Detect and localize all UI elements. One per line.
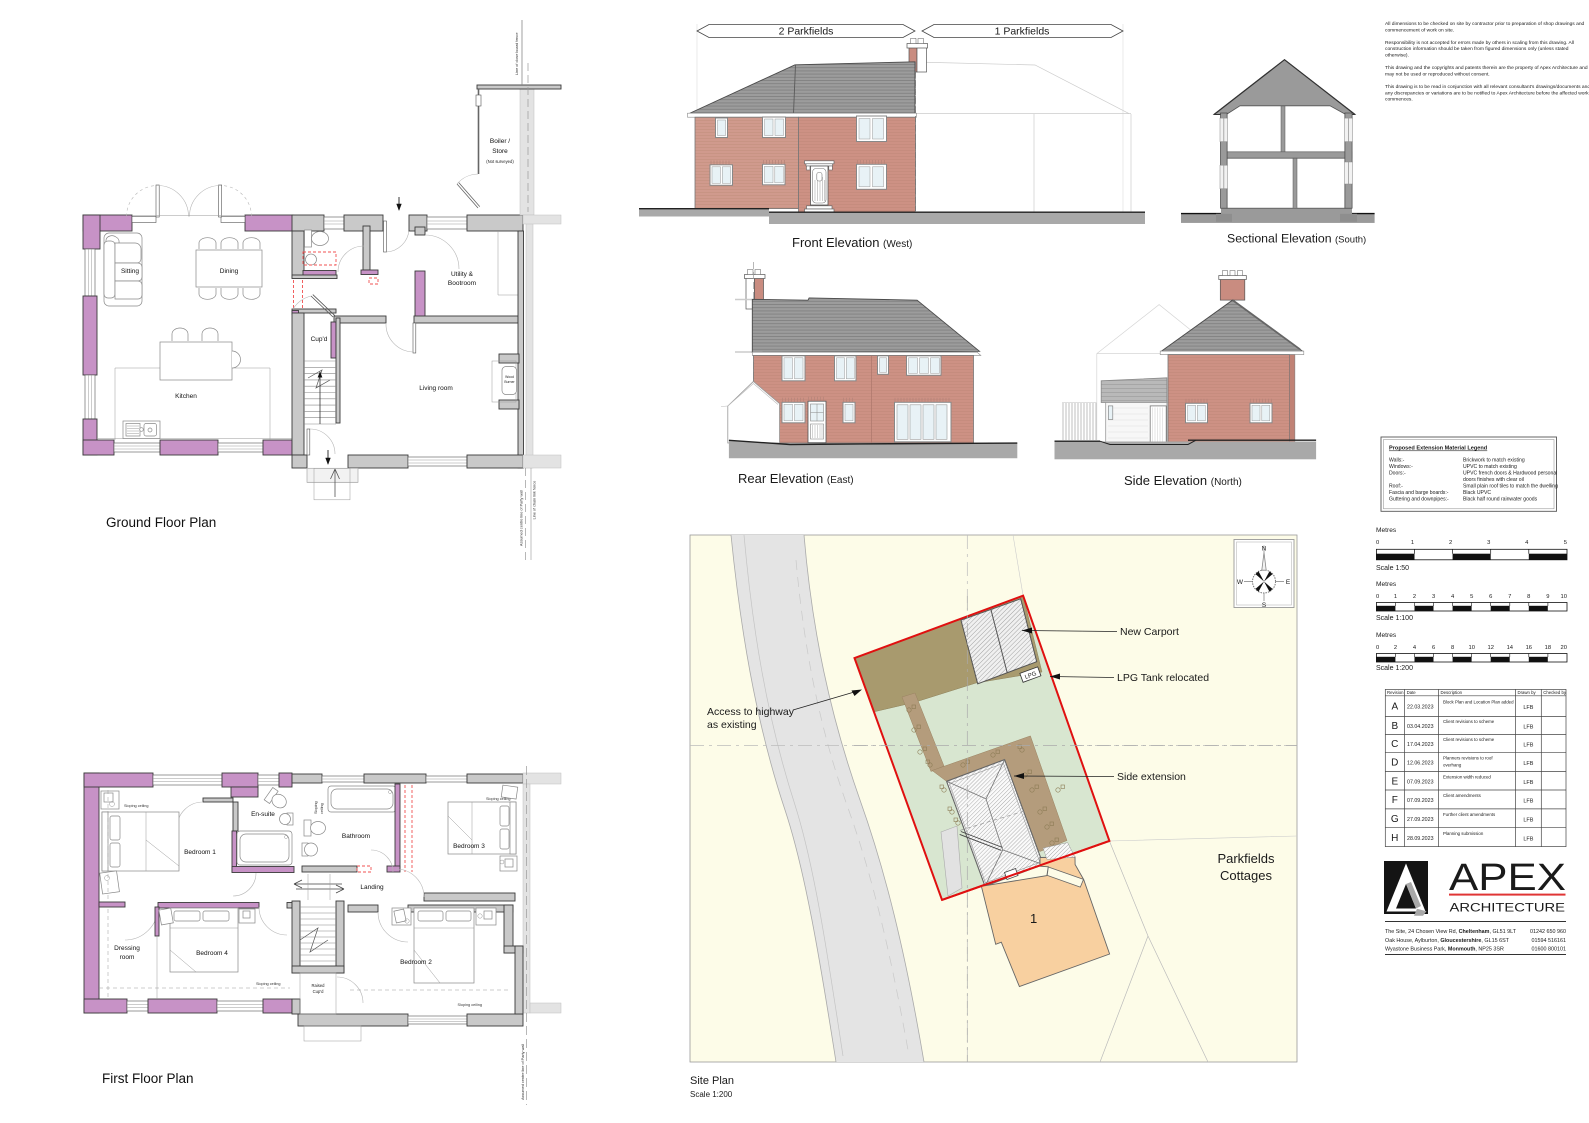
svg-text:Sloping ceiling: Sloping ceiling — [458, 1003, 483, 1007]
svg-text:Brickwork to match existing: Brickwork to match existing — [1463, 458, 1525, 464]
svg-text:D: D — [1391, 758, 1398, 769]
svg-text:UPVC to match existing: UPVC to match existing — [1463, 464, 1517, 470]
svg-text:room: room — [120, 954, 135, 961]
svg-text:6: 6 — [1432, 645, 1435, 651]
svg-text:Extension width reduced: Extension width reduced — [1443, 775, 1491, 780]
svg-text:Scale 1:100: Scale 1:100 — [1376, 615, 1413, 622]
svg-text:Doors:-: Doors:- — [1389, 471, 1406, 477]
svg-text:En-suite: En-suite — [251, 811, 275, 818]
svg-text:Scale 1:200: Scale 1:200 — [1376, 665, 1413, 672]
svg-text:Site Plan: Site Plan — [690, 1075, 734, 1087]
svg-text:20: 20 — [1561, 645, 1567, 651]
svg-text:Windows:-: Windows:- — [1389, 464, 1413, 470]
svg-text:5: 5 — [1470, 594, 1473, 600]
svg-text:10: 10 — [1561, 594, 1567, 600]
svg-text:Walls:-: Walls:- — [1389, 458, 1405, 464]
svg-text:07.09.2023: 07.09.2023 — [1407, 798, 1434, 804]
svg-text:Block Plan and Location Plan a: Block Plan and Location Plan added — [1443, 700, 1514, 705]
svg-text:12: 12 — [1487, 645, 1493, 651]
svg-text:8: 8 — [1527, 594, 1530, 600]
svg-text:0: 0 — [1376, 645, 1379, 651]
svg-text:Bedroom 3: Bedroom 3 — [453, 843, 485, 850]
svg-text:Description: Description — [1441, 690, 1463, 695]
svg-text:Bootroom: Bootroom — [448, 280, 476, 287]
svg-text:7: 7 — [1508, 594, 1511, 600]
svg-text:ceiling: ceiling — [320, 803, 324, 814]
svg-text:Sitting: Sitting — [121, 268, 139, 275]
svg-text:F: F — [1392, 795, 1398, 806]
svg-text:Store: Store — [492, 148, 508, 155]
svg-text:UPVC french doors & Hardwood p: UPVC french doors & Hardwood personal — [1463, 471, 1557, 477]
svg-text:Small plain roof tiles to matc: Small plain roof tiles to match the dwel… — [1463, 484, 1558, 490]
svg-text:01242 650 960: 01242 650 960 — [1530, 929, 1566, 935]
svg-text:22.03.2023: 22.03.2023 — [1407, 705, 1434, 711]
svg-text:Cottages: Cottages — [1220, 868, 1273, 883]
svg-text:Sectional Elevation (South): Sectional Elevation (South) — [1227, 232, 1366, 246]
svg-text:Scale 1:200: Scale 1:200 — [690, 1090, 733, 1099]
svg-text:Drawn by: Drawn by — [1518, 690, 1537, 695]
svg-text:LFB: LFB — [1523, 743, 1533, 749]
svg-text:Cup'd: Cup'd — [313, 989, 324, 994]
svg-text:18: 18 — [1545, 645, 1551, 651]
svg-text:LFB: LFB — [1523, 799, 1533, 805]
svg-text:may not be used or reproduced: may not be used or reproduced without co… — [1385, 71, 1490, 77]
svg-text:First Floor Plan: First Floor Plan — [102, 1071, 194, 1086]
svg-text:A: A — [1391, 702, 1398, 713]
svg-text:12.06.2023: 12.06.2023 — [1407, 761, 1434, 767]
svg-text:Assumed centre line of Party w: Assumed centre line of Party wall — [520, 490, 524, 546]
svg-text:Assumed centre line of Party w: Assumed centre line of Party wall — [521, 1044, 525, 1100]
svg-text:07.09.2023: 07.09.2023 — [1407, 780, 1434, 786]
svg-text:commencement of work on site.: commencement of work on site. — [1385, 27, 1454, 33]
svg-text:Oak House, Aylburton, Gloucest: Oak House, Aylburton, Gloucestershire, G… — [1385, 938, 1510, 944]
svg-text:Planners revisions to roof: Planners revisions to roof — [1443, 756, 1493, 761]
svg-text:Boiler /: Boiler / — [490, 138, 510, 145]
svg-text:Checked by: Checked by — [1543, 690, 1567, 695]
svg-text:G: G — [1391, 814, 1399, 825]
svg-text:Ground Floor Plan: Ground Floor Plan — [106, 515, 216, 530]
svg-text:27.09.2023: 27.09.2023 — [1407, 817, 1434, 823]
svg-text:Wyastone Business Park, Monmou: Wyastone Business Park, Monmouth, NP25 3… — [1385, 947, 1504, 953]
svg-text:Wood: Wood — [505, 375, 514, 379]
svg-text:Date: Date — [1407, 690, 1417, 695]
svg-text:any discrepancies or variation: any discrepancies or variations are to b… — [1385, 90, 1589, 96]
svg-text:Landing: Landing — [360, 884, 384, 891]
svg-text:LFB: LFB — [1523, 725, 1533, 731]
svg-text:1: 1 — [1030, 911, 1037, 926]
svg-text:14: 14 — [1507, 645, 1514, 651]
svg-text:B: B — [1391, 721, 1398, 732]
svg-text:Dressing: Dressing — [114, 945, 140, 952]
svg-text:LPG Tank relocated: LPG Tank relocated — [1117, 672, 1209, 684]
svg-text:Raised: Raised — [311, 983, 325, 988]
svg-text:Metres: Metres — [1376, 632, 1397, 639]
svg-text:Client amendments: Client amendments — [1443, 793, 1482, 798]
svg-text:Guttering and downpipes:-: Guttering and downpipes:- — [1389, 497, 1449, 503]
svg-text:Bedroom 2: Bedroom 2 — [400, 959, 432, 966]
svg-text:LFB: LFB — [1523, 780, 1533, 786]
svg-text:Metres: Metres — [1376, 527, 1397, 534]
svg-text:LFB: LFB — [1523, 761, 1533, 767]
svg-text:3: 3 — [1487, 540, 1490, 546]
svg-text:Side extension: Side extension — [1117, 771, 1186, 783]
svg-text:LFB: LFB — [1523, 817, 1533, 823]
svg-text:S: S — [1262, 602, 1267, 609]
svg-text:This drawing and the copyright: This drawing and the copyrights and pate… — [1385, 65, 1588, 71]
svg-text:Access to highway: Access to highway — [707, 706, 795, 718]
svg-text:0: 0 — [1376, 540, 1379, 546]
svg-text:01594 516161: 01594 516161 — [1532, 938, 1566, 944]
svg-text:LFB: LFB — [1523, 705, 1533, 711]
svg-text:Planning submission: Planning submission — [1443, 831, 1484, 836]
svg-text:Line of chain link fence: Line of chain link fence — [533, 481, 537, 520]
svg-text:overhang: overhang — [1443, 763, 1462, 768]
svg-text:Further client amendments: Further client amendments — [1443, 812, 1496, 817]
svg-text:2: 2 — [1413, 594, 1416, 600]
svg-text:2: 2 — [1449, 540, 1452, 546]
svg-text:10: 10 — [1468, 645, 1474, 651]
svg-text:5: 5 — [1564, 540, 1567, 546]
svg-text:E: E — [1286, 579, 1291, 586]
svg-text:All dimensions to be checked o: All dimensions to be checked on site by … — [1385, 21, 1585, 27]
svg-text:Metres: Metres — [1376, 581, 1397, 588]
svg-text:16: 16 — [1526, 645, 1532, 651]
svg-text:ARCHITECTURE: ARCHITECTURE — [1450, 901, 1566, 915]
svg-text:C: C — [1391, 739, 1398, 750]
svg-text:Burner: Burner — [504, 380, 515, 384]
svg-text:Line of close board fence: Line of close board fence — [515, 33, 519, 75]
svg-text:Parkfields: Parkfields — [1217, 851, 1275, 866]
svg-text:Sloping: Sloping — [314, 801, 318, 814]
svg-text:Client revisions to scheme: Client revisions to scheme — [1443, 719, 1495, 724]
svg-text:Utility &: Utility & — [451, 271, 474, 278]
svg-text:Sloping ceiling: Sloping ceiling — [124, 804, 149, 808]
svg-text:otherwise).: otherwise). — [1385, 53, 1409, 59]
svg-text:Bedroom 4: Bedroom 4 — [196, 950, 228, 957]
svg-text:N: N — [1262, 546, 1267, 553]
svg-text:H: H — [1391, 833, 1398, 844]
svg-text:2: 2 — [1394, 645, 1397, 651]
svg-text:Proposed Extension Material Le: Proposed Extension Material Legend — [1389, 446, 1488, 452]
svg-text:3: 3 — [1432, 594, 1435, 600]
svg-text:Dining: Dining — [220, 268, 239, 275]
svg-text:01600 800101: 01600 800101 — [1532, 947, 1566, 953]
svg-text:2 Parkfields: 2 Parkfields — [779, 26, 834, 38]
svg-text:Roof:-: Roof:- — [1389, 484, 1403, 490]
svg-text:6: 6 — [1489, 594, 1492, 600]
svg-text:8: 8 — [1451, 645, 1454, 651]
svg-text:Kitchen: Kitchen — [175, 393, 197, 400]
svg-text:APEX: APEX — [1449, 857, 1566, 899]
svg-text:Fascia and barge boards:-: Fascia and barge boards:- — [1389, 490, 1449, 496]
svg-text:Responsibility is not accepted: Responsibility is not accepted for error… — [1385, 40, 1574, 46]
svg-text:Scale 1:50: Scale 1:50 — [1376, 565, 1409, 572]
svg-text:Bathroom: Bathroom — [342, 833, 370, 840]
svg-text:(Not surveyed): (Not surveyed) — [486, 159, 514, 164]
svg-text:New Carport: New Carport — [1120, 626, 1179, 638]
svg-text:doors finishes with clear oil: doors finishes with clear oil — [1463, 477, 1524, 483]
svg-text:1: 1 — [1394, 594, 1397, 600]
svg-text:construction information shoul: construction information should be taken… — [1385, 46, 1569, 52]
svg-text:Sloping ceiling: Sloping ceiling — [256, 982, 281, 986]
svg-text:Living room: Living room — [419, 385, 453, 392]
svg-text:commences.: commences. — [1385, 98, 1413, 103]
svg-text:9: 9 — [1546, 594, 1549, 600]
svg-text:Sloping ceiling: Sloping ceiling — [486, 797, 511, 801]
svg-text:1 Parkfields: 1 Parkfields — [995, 26, 1050, 38]
svg-text:0: 0 — [1376, 594, 1379, 600]
svg-text:17.04.2023: 17.04.2023 — [1407, 742, 1434, 748]
svg-text:W: W — [1237, 579, 1244, 586]
svg-text:Revision: Revision — [1387, 690, 1404, 695]
svg-text:Client revisions to scheme: Client revisions to scheme — [1443, 737, 1495, 742]
svg-text:03.04.2023: 03.04.2023 — [1407, 724, 1434, 730]
svg-text:E: E — [1391, 777, 1398, 788]
svg-text:as existing: as existing — [707, 719, 757, 731]
svg-text:This drawing is to be read in: This drawing is to be read in conjunctio… — [1385, 84, 1589, 90]
svg-text:28.09.2023: 28.09.2023 — [1407, 836, 1434, 842]
svg-text:LFB: LFB — [1523, 836, 1533, 842]
svg-text:Cup'd: Cup'd — [311, 336, 328, 343]
svg-text:Black UPVC: Black UPVC — [1463, 490, 1491, 496]
svg-text:1: 1 — [1411, 540, 1414, 546]
svg-text:Bedroom 1: Bedroom 1 — [184, 849, 216, 856]
svg-text:Black half round rainwater goo: Black half round rainwater goods — [1463, 497, 1538, 503]
svg-text:The Site, 24 Chosen View Rd, C: The Site, 24 Chosen View Rd, Cheltenham,… — [1385, 929, 1517, 935]
